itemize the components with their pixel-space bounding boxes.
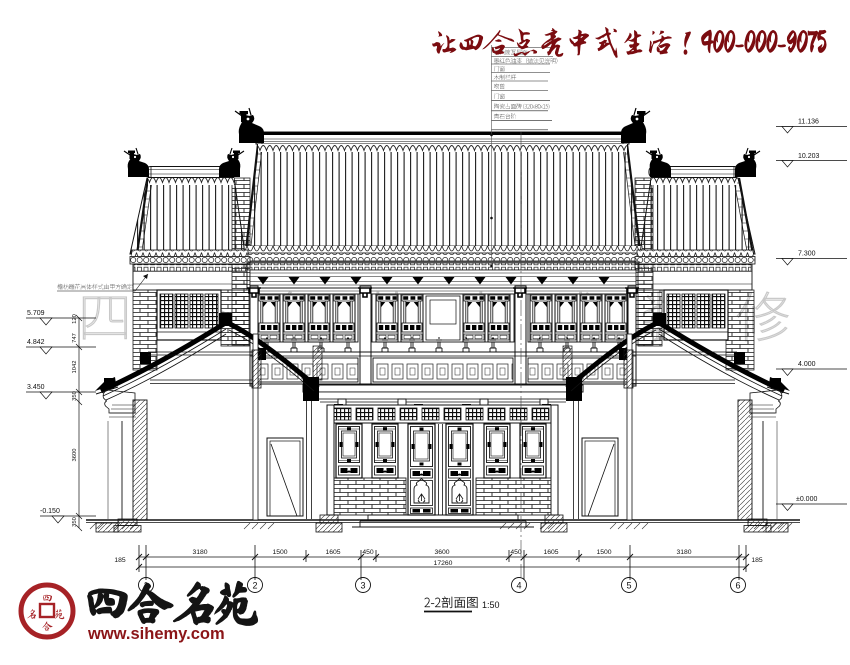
svg-text:www.sihemy.com: www.sihemy.com <box>87 625 225 643</box>
svg-text:17260: 17260 <box>434 560 453 567</box>
svg-text:120: 120 <box>72 314 78 324</box>
svg-text:4.842: 4.842 <box>27 339 45 346</box>
svg-text:3180: 3180 <box>676 549 691 556</box>
svg-text:7.300: 7.300 <box>798 251 816 258</box>
svg-text:5: 5 <box>626 581 631 591</box>
svg-text:3: 3 <box>360 581 365 591</box>
svg-text:350: 350 <box>72 391 78 401</box>
svg-text:-0.150: -0.150 <box>40 508 60 515</box>
svg-text:4: 4 <box>516 581 521 591</box>
svg-text:1500: 1500 <box>596 549 611 556</box>
svg-text:350: 350 <box>72 517 78 527</box>
svg-text:3180: 3180 <box>192 549 207 556</box>
svg-text:747: 747 <box>72 333 78 343</box>
svg-text:±0.000: ±0.000 <box>796 496 817 503</box>
svg-text:11.136: 11.136 <box>798 119 819 126</box>
svg-text:5.709: 5.709 <box>27 310 45 317</box>
svg-text:1605: 1605 <box>325 549 340 556</box>
svg-text:3600: 3600 <box>72 449 78 462</box>
svg-text:1500: 1500 <box>272 549 287 556</box>
svg-text:2: 2 <box>252 581 257 591</box>
svg-text:3600: 3600 <box>434 549 449 556</box>
svg-text:4.000: 4.000 <box>798 361 816 368</box>
svg-text:10.203: 10.203 <box>798 153 820 160</box>
svg-text:6: 6 <box>735 581 740 591</box>
svg-text:3.450: 3.450 <box>27 384 45 391</box>
svg-text:185: 185 <box>114 557 126 564</box>
svg-text:450: 450 <box>510 549 522 556</box>
svg-text:1042: 1042 <box>72 361 78 374</box>
svg-text:450: 450 <box>362 549 374 556</box>
svg-text:1605: 1605 <box>543 549 558 556</box>
svg-text:1:50: 1:50 <box>482 600 500 610</box>
svg-text:185: 185 <box>751 557 763 564</box>
